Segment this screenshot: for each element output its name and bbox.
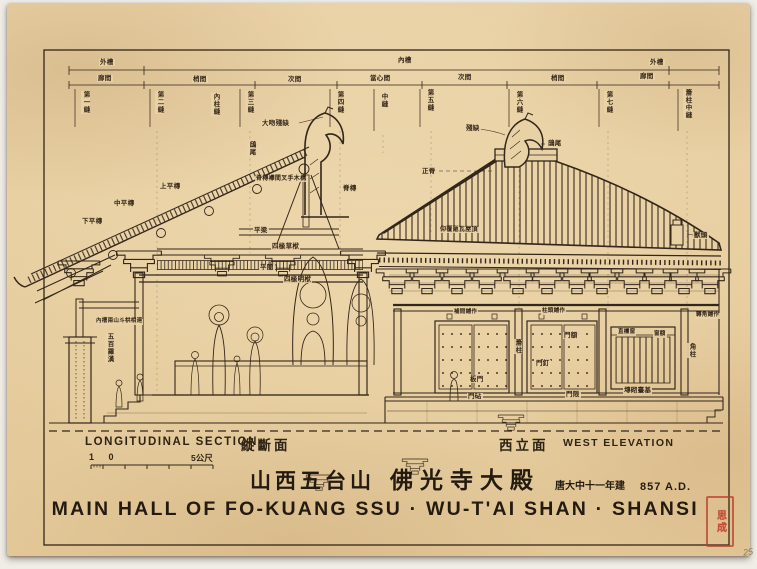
annotation-label: 正脊 bbox=[421, 168, 437, 175]
annotation-label: 門限 bbox=[565, 391, 581, 398]
annotation-label: 大吻殘缺 bbox=[261, 120, 290, 127]
title-date-zh: 唐大中十一年建 bbox=[555, 477, 625, 495]
annotation-label: 門釘 bbox=[535, 360, 551, 367]
annotation-label: 平梁 bbox=[253, 227, 269, 234]
annotation-label: 鴟尾 bbox=[247, 141, 256, 156]
annotation-label: 梢間 bbox=[550, 75, 566, 82]
annotation-label: 上平槫 bbox=[159, 183, 181, 190]
annotation-label: 簷柱中縫 bbox=[683, 89, 692, 119]
annotation-label: 梢間 bbox=[192, 76, 208, 83]
annotation-label: 轉角鋪作 bbox=[695, 313, 720, 319]
annotation-label: 廊間 bbox=[97, 75, 113, 82]
annotation-label: 第四縫 bbox=[335, 91, 344, 114]
annotation-label: 角柱 bbox=[687, 343, 696, 358]
annotation-label: 內柱縫 bbox=[211, 93, 220, 116]
annotation-label: 直欞窗 bbox=[617, 330, 636, 336]
red-seal: 思成 bbox=[706, 496, 734, 547]
annotation-label: 中平槫 bbox=[113, 200, 135, 207]
annotation-label: 門砧 bbox=[467, 393, 483, 400]
annotation-label: 塼砌臺基 bbox=[623, 387, 652, 394]
caption-longitudinal-section-zh: 縱斷面 bbox=[241, 434, 291, 454]
annotation-label: 中縫 bbox=[379, 93, 388, 108]
annotation-label: 四椽明栿 bbox=[283, 276, 312, 283]
annotation-label: 簷柱 bbox=[513, 339, 522, 354]
annotation-label: 廊間 bbox=[639, 73, 655, 80]
annotation-label: 鴟尾 bbox=[547, 140, 563, 147]
annotation-label: 第六縫 bbox=[514, 91, 523, 114]
annotation-label: 內槽 bbox=[397, 57, 413, 64]
annotation-label: 第一縫 bbox=[81, 91, 90, 114]
scale-label-left: 1 0 bbox=[89, 452, 120, 462]
annotation-label: 窗額 bbox=[653, 332, 667, 338]
title-date-western: 857 A.D. bbox=[640, 481, 691, 495]
annotation-label: 第二縫 bbox=[155, 91, 164, 114]
annotation-label: 脊槫 bbox=[342, 185, 358, 192]
seal-characters: 思成 bbox=[713, 510, 728, 534]
annotation-label: 門額 bbox=[563, 332, 579, 339]
drawing-sheet: 外槽內槽外槽廊間梢間次間當心間次間梢間廊間第一縫第二縫內柱縫第三縫第四縫中縫第五… bbox=[7, 3, 750, 556]
annotation-label: 第七縫 bbox=[604, 91, 613, 114]
annotation-label: 補間鋪作 bbox=[453, 310, 478, 316]
caption-west-elevation-en: WEST ELEVATION bbox=[563, 437, 674, 449]
annotation-label: 板門 bbox=[469, 376, 485, 383]
annotation-label: 第三縫 bbox=[245, 91, 254, 114]
annotation-label: 內槽兩山斗栱相連 bbox=[95, 319, 143, 325]
title-chinese: 山西五台山 佛光寺大殿 唐大中十一年建 857 A.D. bbox=[250, 461, 691, 495]
annotation-label: 平闇 bbox=[259, 264, 275, 271]
annotation-label: 仰覆瓪瓦屋頂 bbox=[439, 227, 479, 233]
caption-longitudinal-section-en: LONGITUDINAL SECTION bbox=[85, 436, 258, 448]
annotation-label: 獸頭 bbox=[693, 232, 709, 239]
annotation-label: 脊槫襻間叉手木構 bbox=[255, 176, 307, 182]
page-number: 25 bbox=[742, 546, 753, 557]
annotation-label: 第五縫 bbox=[425, 89, 434, 112]
title-location-zh: 山西五台山 bbox=[250, 465, 375, 495]
caption-west-elevation-zh: 西立面 bbox=[499, 434, 549, 454]
scale-label-right: 5公尺 bbox=[191, 452, 213, 464]
title-building-zh: 佛光寺大殿 bbox=[390, 461, 540, 495]
annotation-label: 外槽 bbox=[649, 59, 665, 66]
annotation-label: 柱頭鋪作 bbox=[541, 309, 566, 315]
annotation-label: 五百羅漢 bbox=[105, 333, 114, 363]
annotation-label: 下平槫 bbox=[81, 218, 103, 225]
annotation-label: 四椽草栿 bbox=[271, 243, 300, 250]
annotation-label: 次間 bbox=[287, 76, 303, 83]
annotation-label: 當心間 bbox=[369, 75, 391, 82]
annotation-label: 殘缺 bbox=[465, 125, 481, 132]
annotation-label: 外槽 bbox=[99, 59, 115, 66]
annotation-label: 次間 bbox=[457, 74, 473, 81]
title-english: MAIN HALL OF FO-KUANG SSU · WU-T'AI SHAN… bbox=[52, 498, 699, 521]
